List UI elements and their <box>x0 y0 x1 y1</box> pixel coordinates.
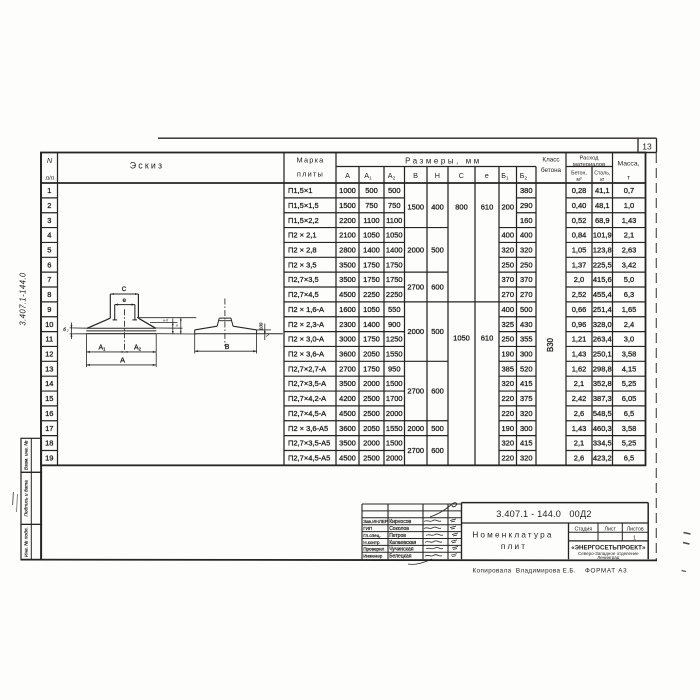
svg-text:Марка: Марка <box>297 156 325 165</box>
svg-text:16: 16 <box>45 409 53 418</box>
svg-text:423,2: 423,2 <box>593 454 612 463</box>
svg-text:2000: 2000 <box>386 409 403 418</box>
svg-text:6,05: 6,05 <box>622 394 637 403</box>
svg-text:2000: 2000 <box>363 379 380 388</box>
svg-text:220: 220 <box>501 394 514 403</box>
svg-text:250,1: 250,1 <box>593 349 612 358</box>
svg-text:320: 320 <box>501 379 514 388</box>
svg-text:7: 7 <box>47 275 51 284</box>
svg-text:2: 2 <box>47 201 51 210</box>
svg-text:600: 600 <box>431 387 444 396</box>
svg-text:225,5: 225,5 <box>593 260 612 269</box>
svg-text:2800: 2800 <box>339 245 356 254</box>
svg-text:500: 500 <box>431 246 444 255</box>
svg-text:600: 600 <box>431 446 444 455</box>
svg-text:Инв. № подл.: Инв. № подл. <box>24 527 30 557</box>
svg-text:375: 375 <box>520 394 533 403</box>
svg-text:41,1: 41,1 <box>595 186 610 195</box>
svg-text:П1,5×1: П1,5×1 <box>288 186 312 195</box>
svg-text:5,25: 5,25 <box>622 439 637 448</box>
svg-text:320: 320 <box>501 245 514 254</box>
svg-text:500: 500 <box>431 327 444 336</box>
svg-text:1100: 1100 <box>386 216 402 225</box>
svg-text:Белецкая: Белецкая <box>389 554 412 560</box>
svg-text:610: 610 <box>481 203 494 212</box>
svg-text:500: 500 <box>431 424 444 433</box>
svg-text:1: 1 <box>633 535 636 541</box>
svg-text:ФОРМАТ А3: ФОРМАТ А3 <box>585 568 627 575</box>
svg-text:0,28: 0,28 <box>572 186 587 195</box>
svg-text:1,65: 1,65 <box>622 305 637 314</box>
svg-text:В: В <box>413 171 418 180</box>
svg-text:6,3: 6,3 <box>624 290 634 299</box>
svg-text:548,5: 548,5 <box>593 409 612 418</box>
svg-text:370: 370 <box>501 275 514 284</box>
svg-text:250: 250 <box>520 260 533 269</box>
svg-text:4500: 4500 <box>339 454 356 463</box>
svg-text:415: 415 <box>520 379 533 388</box>
svg-text:200: 200 <box>501 203 514 212</box>
svg-text:4: 4 <box>47 231 51 240</box>
svg-text:П1,5×1,5: П1,5×1,5 <box>288 201 319 210</box>
svg-text:П2 × 2,1: П2 × 2,1 <box>288 231 317 240</box>
svg-text:328,0: 328,0 <box>593 320 612 329</box>
svg-text:251,4: 251,4 <box>593 305 612 314</box>
svg-text:П2 × 2,8: П2 × 2,8 <box>288 245 317 254</box>
svg-text:2,1: 2,1 <box>624 231 634 240</box>
svg-text:900: 900 <box>388 320 401 329</box>
svg-text:123,8: 123,8 <box>593 245 612 254</box>
svg-text:250: 250 <box>501 260 514 269</box>
svg-text:2700: 2700 <box>407 446 424 455</box>
svg-text:1,37: 1,37 <box>572 260 587 269</box>
svg-text:190: 190 <box>501 424 514 433</box>
svg-text:6: 6 <box>47 260 51 269</box>
svg-text:2000: 2000 <box>407 424 424 433</box>
svg-text:2500: 2500 <box>363 454 380 463</box>
svg-text:Калаевская: Калаевская <box>389 540 416 546</box>
svg-text:290: 290 <box>520 201 533 210</box>
svg-text:е: е <box>485 171 489 180</box>
svg-text:400: 400 <box>520 231 533 240</box>
svg-text:14: 14 <box>45 379 53 388</box>
svg-text:т: т <box>627 175 630 182</box>
svg-text:материалов: материалов <box>573 162 605 168</box>
svg-text:11: 11 <box>45 335 53 344</box>
svg-text:Сталь,: Сталь, <box>594 171 610 177</box>
svg-text:2,63: 2,63 <box>622 245 637 254</box>
svg-text:17: 17 <box>45 424 53 433</box>
svg-text:Лист: Лист <box>605 526 617 532</box>
svg-text:5,0: 5,0 <box>624 275 634 284</box>
svg-text:500: 500 <box>365 186 378 195</box>
svg-text:1600: 1600 <box>339 305 356 314</box>
svg-text:Эскиз: Эскиз <box>130 161 165 171</box>
svg-text:В30: В30 <box>546 337 555 352</box>
svg-text:3,58: 3,58 <box>622 424 637 433</box>
svg-text:3.407.1-144.0: 3.407.1-144.0 <box>19 272 28 326</box>
svg-text:1100: 1100 <box>363 216 379 225</box>
svg-text:500: 500 <box>520 305 533 314</box>
svg-text:0,40: 0,40 <box>572 201 587 210</box>
svg-text:1500: 1500 <box>386 439 403 448</box>
svg-text:Класс: Класс <box>542 157 559 164</box>
svg-text:П2 × 3,6-А: П2 × 3,6-А <box>288 349 324 358</box>
svg-text:2,0: 2,0 <box>574 275 584 284</box>
svg-text:270: 270 <box>501 290 514 299</box>
svg-text:100: 100 <box>259 322 264 330</box>
svg-text:387,3: 387,3 <box>593 394 612 403</box>
svg-text:1: 1 <box>47 186 51 195</box>
svg-text:1050: 1050 <box>363 305 380 314</box>
svg-text:1,05: 1,05 <box>572 245 587 254</box>
svg-text:300: 300 <box>520 349 533 358</box>
svg-text:263,4: 263,4 <box>593 335 612 344</box>
svg-text:2000: 2000 <box>386 454 403 463</box>
svg-text:ГИП: ГИП <box>363 526 372 531</box>
svg-text:3: 3 <box>47 216 51 225</box>
svg-text:101,9: 101,9 <box>593 231 612 240</box>
svg-text:48,1: 48,1 <box>595 201 610 210</box>
svg-text:Зав.ИНЛЕР: Зав.ИНЛЕР <box>363 519 388 524</box>
svg-text:19: 19 <box>45 454 53 463</box>
svg-text:В: В <box>225 344 230 351</box>
svg-text:Проверил: Проверил <box>363 547 384 552</box>
svg-text:2,6: 2,6 <box>574 409 584 418</box>
svg-text:кг: кг <box>600 177 604 183</box>
svg-text:2000: 2000 <box>407 327 424 336</box>
svg-text:5: 5 <box>47 245 51 254</box>
svg-text:415,6: 415,6 <box>593 275 612 284</box>
svg-text:Инженер: Инженер <box>363 554 383 559</box>
svg-text:Стадия: Стадия <box>574 526 592 532</box>
svg-text:460,3: 460,3 <box>593 424 612 433</box>
svg-text:4500: 4500 <box>339 290 356 299</box>
svg-text:9: 9 <box>47 305 51 314</box>
svg-text:325: 325 <box>501 320 514 329</box>
svg-text:950: 950 <box>388 364 401 373</box>
svg-text:0,84: 0,84 <box>572 231 587 240</box>
svg-text:Чучинская: Чучинская <box>389 547 414 553</box>
svg-text:П2,7×2,7-А: П2,7×2,7-А <box>288 364 326 373</box>
svg-text:2700: 2700 <box>339 364 356 373</box>
svg-text:1750: 1750 <box>363 275 380 284</box>
svg-text:Номенклатура: Номенклатура <box>472 531 553 540</box>
svg-text:250: 250 <box>501 335 514 344</box>
svg-text:10: 10 <box>45 320 53 329</box>
svg-text:400: 400 <box>431 203 444 212</box>
svg-text:500: 500 <box>388 186 401 195</box>
svg-text:2700: 2700 <box>407 283 424 292</box>
svg-text:1400: 1400 <box>363 320 380 329</box>
svg-text:2000: 2000 <box>407 246 424 255</box>
svg-text:385: 385 <box>501 364 514 373</box>
svg-text:1500: 1500 <box>407 203 424 212</box>
svg-text:6,5: 6,5 <box>624 454 634 463</box>
svg-text:1,62: 1,62 <box>572 364 587 373</box>
svg-text:Подпись и дата: Подпись и дата <box>24 480 30 517</box>
svg-text:2500: 2500 <box>363 394 380 403</box>
svg-text:320: 320 <box>520 454 533 463</box>
svg-text:1750: 1750 <box>363 260 380 269</box>
svg-text:1500: 1500 <box>386 379 403 388</box>
svg-text:1,43: 1,43 <box>572 424 587 433</box>
svg-text:4200: 4200 <box>339 394 356 403</box>
svg-text:1750: 1750 <box>363 335 380 344</box>
svg-text:370: 370 <box>520 275 533 284</box>
svg-text:610: 610 <box>481 334 494 343</box>
svg-text:С: С <box>122 286 127 293</box>
svg-text:0,96: 0,96 <box>572 320 587 329</box>
svg-text:430: 430 <box>520 320 533 329</box>
svg-text:Петров: Петров <box>389 533 406 539</box>
svg-text:1750: 1750 <box>386 260 403 269</box>
svg-text:3500: 3500 <box>339 379 356 388</box>
svg-text:бетона: бетона <box>541 166 562 174</box>
svg-text:1250: 1250 <box>386 335 403 344</box>
svg-text:П2,7×4,5-А5: П2,7×4,5-А5 <box>288 454 330 463</box>
svg-text:2200: 2200 <box>339 216 356 225</box>
svg-text:1,21: 1,21 <box>572 335 587 344</box>
svg-text:13: 13 <box>642 142 652 152</box>
svg-text:2: 2 <box>66 329 69 333</box>
svg-text:С: С <box>459 171 464 180</box>
svg-text:550: 550 <box>388 305 401 314</box>
svg-text:15: 15 <box>45 394 53 403</box>
svg-text:2700: 2700 <box>407 387 424 396</box>
svg-text:2100: 2100 <box>339 231 356 240</box>
svg-text:3500: 3500 <box>339 275 356 284</box>
svg-text:п/п: п/п <box>46 175 55 182</box>
svg-text:190: 190 <box>501 349 514 358</box>
svg-text:П2 × 3,0-А: П2 × 3,0-А <box>288 335 324 344</box>
svg-text:455,4: 455,4 <box>593 290 612 299</box>
svg-text:3,0: 3,0 <box>624 335 634 344</box>
svg-text:2250: 2250 <box>386 290 403 299</box>
svg-text:1700: 1700 <box>386 394 403 403</box>
svg-text:N: N <box>47 156 53 165</box>
svg-text:П2,7×3,5-А5: П2,7×3,5-А5 <box>288 439 330 448</box>
svg-text:352,8: 352,8 <box>593 379 612 388</box>
svg-text:плит: плит <box>501 542 527 551</box>
svg-text:520: 520 <box>520 364 533 373</box>
svg-text:Гл.спец.: Гл.спец. <box>363 533 380 538</box>
svg-text:334,5: 334,5 <box>593 439 612 448</box>
svg-text:П2 × 2,3-А: П2 × 2,3-А <box>288 320 324 329</box>
svg-text:Листов: Листов <box>627 526 644 532</box>
svg-text:400: 400 <box>501 231 514 240</box>
svg-text:1,0: 1,0 <box>624 201 634 210</box>
svg-text:П2,7×4,5: П2,7×4,5 <box>288 290 319 299</box>
svg-text:320: 320 <box>501 439 514 448</box>
svg-text:Бетон,: Бетон, <box>571 171 587 177</box>
svg-text:1000: 1000 <box>339 186 356 195</box>
svg-text:160: 160 <box>520 216 533 225</box>
svg-text:320: 320 <box>520 409 533 418</box>
svg-text:2000: 2000 <box>363 439 380 448</box>
svg-text:Н.контр: Н.контр <box>363 540 380 545</box>
svg-text:3,42: 3,42 <box>622 260 637 269</box>
svg-text:750: 750 <box>388 201 401 210</box>
svg-text:220: 220 <box>501 454 514 463</box>
svg-text:2,1: 2,1 <box>574 439 584 448</box>
svg-text:Кирносов: Кирносов <box>389 519 411 525</box>
svg-text:2500: 2500 <box>363 409 380 418</box>
svg-text:2050: 2050 <box>363 424 380 433</box>
svg-text:Масса,: Масса, <box>618 161 640 168</box>
svg-text:П2,7×4,2-А: П2,7×4,2-А <box>288 394 326 403</box>
svg-text:750: 750 <box>365 201 378 210</box>
svg-text:Соколов: Соколов <box>389 526 409 532</box>
svg-text:300: 300 <box>520 424 533 433</box>
svg-text:220: 220 <box>501 409 514 418</box>
svg-text:П2 × 1,6-А: П2 × 1,6-А <box>288 305 324 314</box>
svg-text:П2 × 3,5: П2 × 3,5 <box>288 260 317 269</box>
svg-text:2250: 2250 <box>363 290 380 299</box>
svg-text:1500: 1500 <box>339 201 356 210</box>
svg-text:П2,7×4,5-А: П2,7×4,5-А <box>288 409 326 418</box>
svg-text:3600: 3600 <box>339 349 356 358</box>
svg-text:2,4: 2,4 <box>624 320 634 329</box>
svg-text:2050: 2050 <box>363 349 380 358</box>
svg-text:13: 13 <box>45 364 53 373</box>
svg-text:Размеры, мм: Размеры, мм <box>405 156 482 165</box>
svg-text:А: А <box>120 355 125 364</box>
svg-text:1050: 1050 <box>386 231 403 240</box>
svg-text:1750: 1750 <box>363 364 380 373</box>
svg-text:270: 270 <box>520 290 533 299</box>
svg-text:2300: 2300 <box>339 320 356 329</box>
svg-text:1400: 1400 <box>386 245 403 254</box>
svg-text:5,25: 5,25 <box>622 379 637 388</box>
svg-text:П2,7×3,5-А: П2,7×3,5-А <box>288 379 326 388</box>
svg-text:4,15: 4,15 <box>622 364 637 373</box>
svg-text:1550: 1550 <box>386 424 403 433</box>
svg-text:4500: 4500 <box>339 409 356 418</box>
svg-text:12: 12 <box>45 349 53 358</box>
svg-text:0,52: 0,52 <box>572 216 587 225</box>
svg-text:1,43: 1,43 <box>572 349 587 358</box>
svg-text:П1,5×2,2: П1,5×2,2 <box>288 216 319 225</box>
svg-text:м³: м³ <box>576 177 582 183</box>
svg-text:1400: 1400 <box>363 245 380 254</box>
svg-text:415: 415 <box>520 439 533 448</box>
svg-text:600: 600 <box>431 283 444 292</box>
svg-text:Ленинград: Ленинград <box>597 555 620 560</box>
svg-text:1050: 1050 <box>453 334 470 343</box>
svg-text:3600: 3600 <box>339 424 356 433</box>
svg-text:3,58: 3,58 <box>622 349 637 358</box>
svg-text:Взам. инв. №: Взам. инв. № <box>24 440 30 470</box>
svg-text:Расход: Расход <box>579 156 599 162</box>
svg-text:0,7: 0,7 <box>624 186 634 195</box>
svg-text:355: 355 <box>520 335 533 344</box>
svg-text:Копировала Владимирова Е.Б.: Копировала Владимирова Е.Б. <box>473 568 577 575</box>
svg-text:1750: 1750 <box>386 275 403 284</box>
svg-text:320: 320 <box>520 245 533 254</box>
svg-text:3500: 3500 <box>339 439 356 448</box>
svg-text:298,8: 298,8 <box>593 364 612 373</box>
svg-text:2,1: 2,1 <box>574 379 584 388</box>
svg-text:800: 800 <box>455 203 468 212</box>
svg-text:П2,7×3,5: П2,7×3,5 <box>288 275 319 284</box>
svg-text:6,5: 6,5 <box>624 409 634 418</box>
svg-text:380: 380 <box>520 186 533 195</box>
svg-text:68,9: 68,9 <box>595 216 610 225</box>
svg-text:2,6: 2,6 <box>574 454 584 463</box>
svg-text:3.407.1 - 144.0 00Д2: 3.407.1 - 144.0 00Д2 <box>496 509 591 519</box>
svg-text:1550: 1550 <box>386 349 403 358</box>
svg-text:П2 × 3,6-А5: П2 × 3,6-А5 <box>288 424 328 433</box>
svg-text:3500: 3500 <box>339 260 356 269</box>
svg-text:3000: 3000 <box>339 335 356 344</box>
svg-text:1,43: 1,43 <box>622 216 637 225</box>
svg-text:Н: Н <box>435 171 440 180</box>
svg-text:400: 400 <box>501 305 514 314</box>
svg-text:18: 18 <box>45 439 53 448</box>
svg-text:А: А <box>345 171 350 180</box>
svg-text:0,66: 0,66 <box>572 305 587 314</box>
svg-text:1050: 1050 <box>363 231 380 240</box>
svg-text:2,52: 2,52 <box>572 290 587 299</box>
svg-text:2,42: 2,42 <box>572 394 587 403</box>
svg-text:8: 8 <box>47 290 51 299</box>
svg-text:плиты: плиты <box>297 170 324 179</box>
